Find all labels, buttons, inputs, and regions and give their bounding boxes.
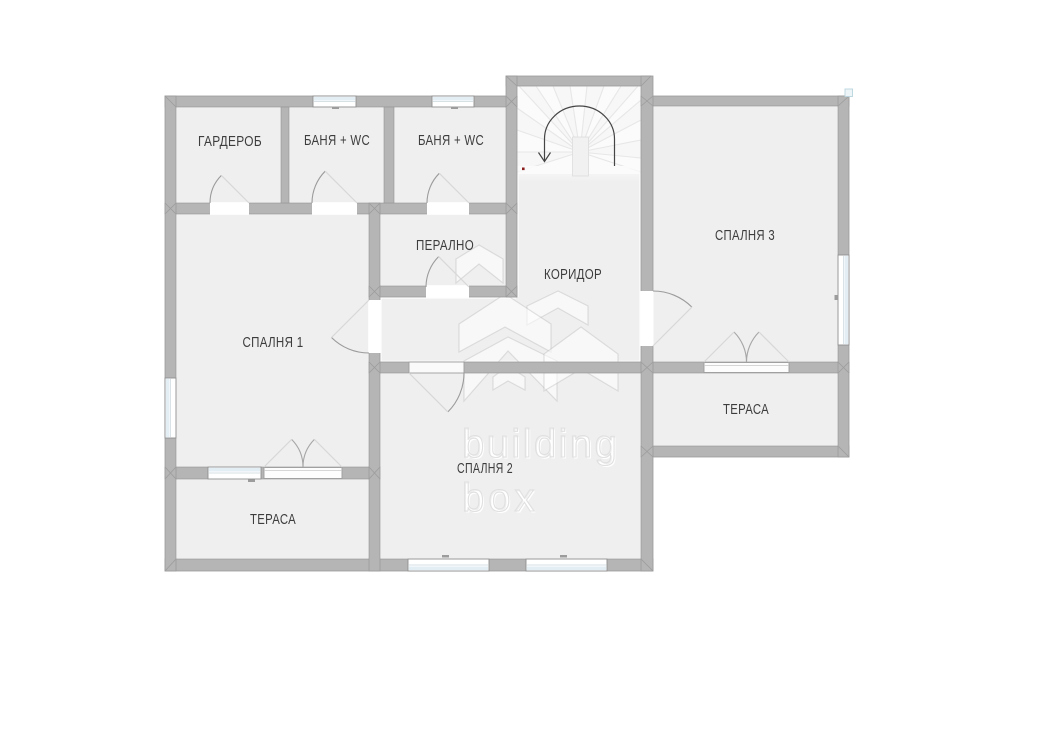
svg-text:ГАРДЕРОБ: ГАРДЕРОБ — [198, 134, 262, 150]
svg-text:СПАЛНЯ 3: СПАЛНЯ 3 — [715, 228, 775, 244]
svg-text:БАНЯ + WC: БАНЯ + WC — [304, 133, 370, 149]
svg-text:КОРИДОР: КОРИДОР — [544, 267, 602, 283]
svg-text:box: box — [462, 476, 539, 520]
svg-text:БАНЯ + WC: БАНЯ + WC — [418, 133, 484, 149]
svg-text:СПАЛНЯ 1: СПАЛНЯ 1 — [243, 335, 304, 351]
svg-text:ТЕРАСА: ТЕРАСА — [250, 512, 296, 528]
svg-text:ТЕРАСА: ТЕРАСА — [723, 402, 769, 418]
svg-text:building: building — [462, 422, 619, 466]
svg-text:ПЕРАЛНО: ПЕРАЛНО — [416, 238, 474, 254]
